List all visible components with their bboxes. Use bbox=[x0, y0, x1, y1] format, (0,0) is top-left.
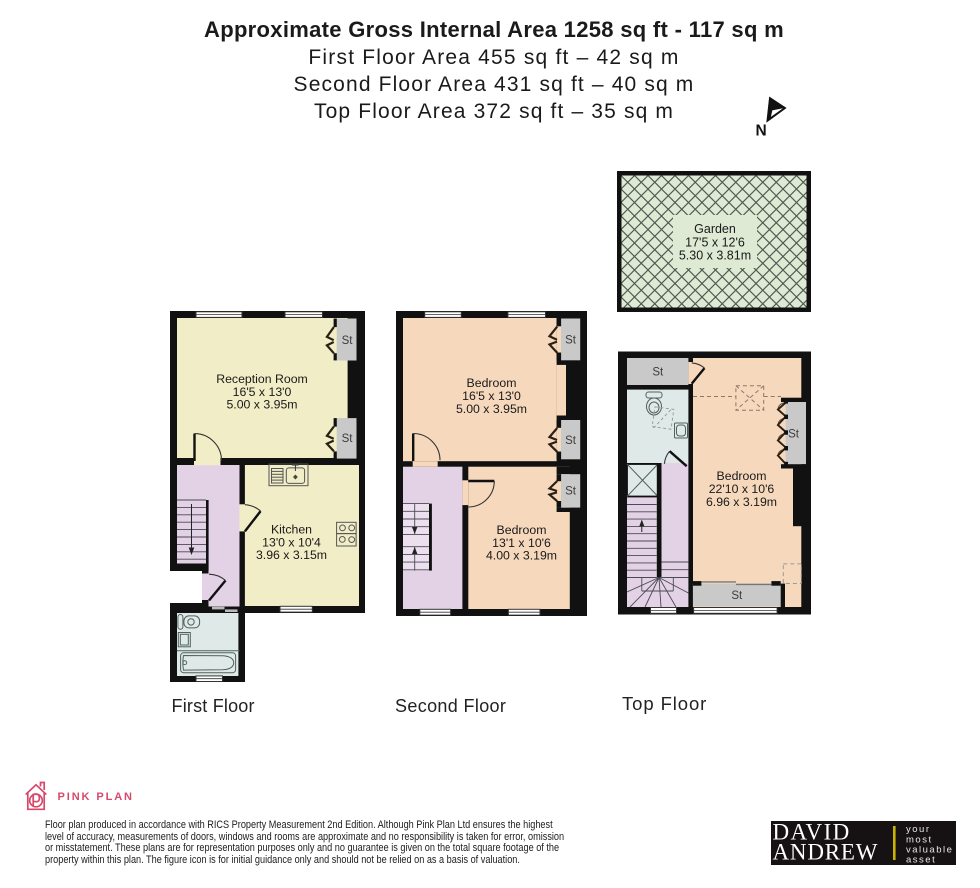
svg-text:3.96 x 3.15m: 3.96 x 3.15m bbox=[256, 548, 327, 562]
svg-text:ANDREW: ANDREW bbox=[773, 840, 879, 865]
svg-text:Bedroom: Bedroom bbox=[497, 523, 547, 537]
svg-text:5.00 x 3.95m: 5.00 x 3.95m bbox=[456, 402, 527, 416]
svg-text:St: St bbox=[342, 335, 354, 347]
svg-text:asset: asset bbox=[906, 855, 936, 866]
svg-text:4.00 x 3.19m: 4.00 x 3.19m bbox=[486, 549, 557, 563]
svg-text:Bedroom: Bedroom bbox=[717, 469, 767, 483]
svg-text:6.96 x 3.19m: 6.96 x 3.19m bbox=[706, 495, 777, 509]
svg-text:5.30 x 3.81m: 5.30 x 3.81m bbox=[679, 249, 751, 263]
svg-text:17'5 x 12'6: 17'5 x 12'6 bbox=[685, 236, 745, 250]
svg-text:5.00 x 3.95m: 5.00 x 3.95m bbox=[226, 398, 297, 412]
svg-text:St: St bbox=[565, 335, 577, 347]
svg-text:Bedroom: Bedroom bbox=[467, 376, 517, 390]
svg-text:St: St bbox=[342, 433, 354, 445]
svg-text:N: N bbox=[756, 123, 767, 140]
svg-text:St: St bbox=[788, 429, 800, 441]
svg-text:Garden: Garden bbox=[694, 222, 736, 236]
svg-text:St: St bbox=[565, 486, 577, 498]
svg-text:13'1 x 10'6: 13'1 x 10'6 bbox=[492, 536, 551, 550]
svg-text:St: St bbox=[652, 367, 664, 379]
svg-text:St: St bbox=[565, 435, 577, 447]
svg-text:Kitchen: Kitchen bbox=[271, 523, 312, 537]
svg-text:22'10 x 10'6: 22'10 x 10'6 bbox=[709, 482, 775, 496]
svg-text:St: St bbox=[731, 590, 743, 602]
